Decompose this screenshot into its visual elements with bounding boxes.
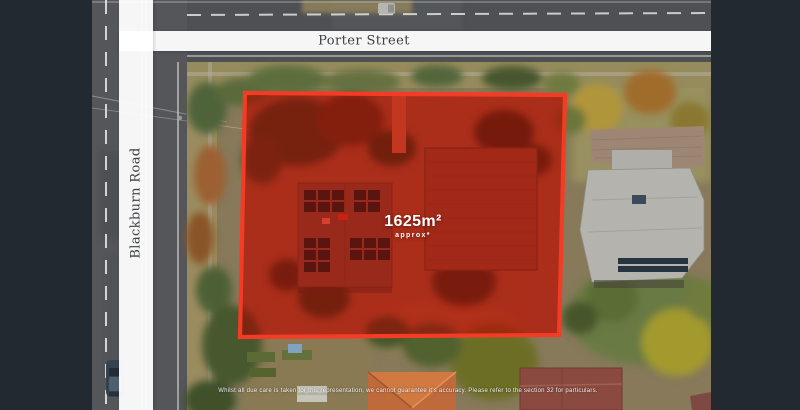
land-area-value: 1625m² — [384, 213, 442, 231]
neighbor-roof — [580, 126, 704, 288]
land-area-qualifier: approx* — [384, 232, 442, 239]
aerial-photo: Porter Street Blackburn Road 1625m² appr… — [92, 0, 711, 410]
letterbox-right — [711, 0, 800, 410]
utility-pole — [178, 116, 182, 120]
land-area-annotation: 1625m² approx* — [384, 213, 442, 239]
letterbox-left — [0, 0, 92, 410]
disclaimer-text: Whilst all due care is taken for this re… — [218, 388, 598, 394]
porter-street-band — [119, 31, 711, 51]
aerial-scene — [92, 0, 711, 410]
listing-image: Porter Street Blackburn Road 1625m² appr… — [0, 0, 800, 410]
skylight — [632, 195, 646, 204]
vehicle-on-porter — [378, 3, 395, 14]
blackburn-road-label: Blackburn Road — [129, 147, 144, 258]
porter-street-label: Porter Street — [318, 34, 410, 49]
